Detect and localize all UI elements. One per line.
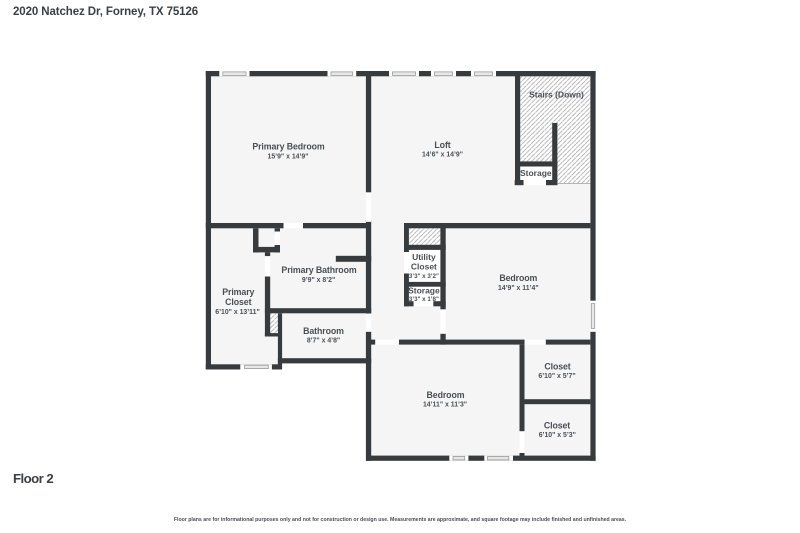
svg-text:Bathroom: Bathroom xyxy=(303,326,344,336)
svg-text:Closet: Closet xyxy=(411,262,437,272)
svg-text:14’11" x 11’3": 14’11" x 11’3" xyxy=(423,402,467,409)
svg-text:Storage: Storage xyxy=(520,168,552,178)
svg-text:Bedroom: Bedroom xyxy=(499,273,537,283)
svg-text:Closet: Closet xyxy=(225,297,251,307)
svg-text:6’10" x 5’3": 6’10" x 5’3" xyxy=(539,432,576,439)
svg-text:9’9" x 8’2": 9’9" x 8’2" xyxy=(302,277,335,284)
svg-text:3’3" x 3’2": 3’3" x 3’2" xyxy=(409,273,439,280)
svg-text:Storage: Storage xyxy=(408,286,440,296)
svg-text:Utility: Utility xyxy=(412,252,436,262)
svg-text:8’7" x 4’8": 8’7" x 4’8" xyxy=(307,338,340,345)
svg-text:Primary: Primary xyxy=(222,287,254,297)
svg-text:6’10" x 13’11": 6’10" x 13’11" xyxy=(215,309,259,316)
svg-text:Primary Bathroom: Primary Bathroom xyxy=(281,265,356,275)
svg-text:Closet: Closet xyxy=(544,362,570,372)
svg-text:Bedroom: Bedroom xyxy=(427,390,465,400)
svg-text:14’6" x 14’9": 14’6" x 14’9" xyxy=(422,152,463,159)
svg-text:14’9" x 11’4": 14’9" x 11’4" xyxy=(498,285,539,292)
svg-text:Closet: Closet xyxy=(544,420,570,430)
svg-text:6’10" x 5’7": 6’10" x 5’7" xyxy=(538,373,575,380)
svg-text:Loft: Loft xyxy=(434,140,450,150)
svg-text:15’9" x 14’9": 15’9" x 14’9" xyxy=(267,153,308,160)
svg-text:Stairs (Down): Stairs (Down) xyxy=(529,90,584,100)
svg-text:3’3" x 1’8": 3’3" x 1’8" xyxy=(409,296,439,303)
svg-text:Primary Bedroom: Primary Bedroom xyxy=(252,142,325,152)
